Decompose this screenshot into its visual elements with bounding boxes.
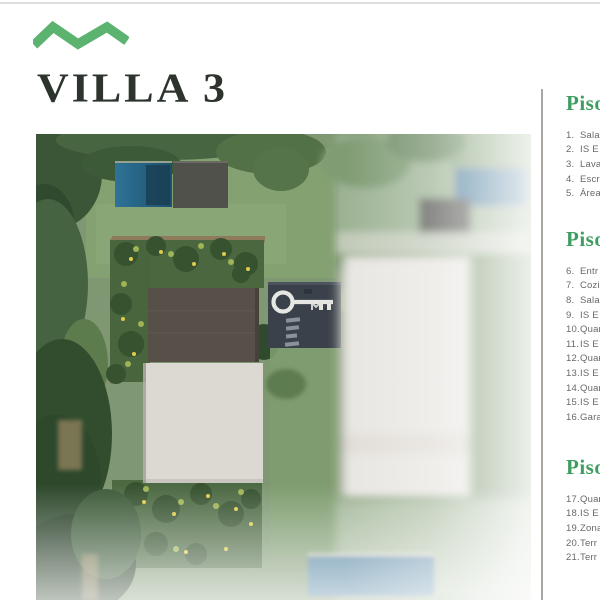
wood-path — [58, 420, 82, 470]
page-title: VILLA 3 — [37, 64, 228, 112]
item-label: Sala — [580, 130, 600, 141]
vertical-divider — [541, 89, 543, 600]
floor-item-list: 17.Quar 18.IS E 19.Zona 20.Terr 21.Terr — [566, 492, 600, 565]
item-label: IS E — [580, 508, 599, 519]
item-label: Cozi — [580, 280, 600, 291]
item-number: 21. — [566, 552, 580, 563]
item-label: Lava — [580, 159, 600, 170]
item-number: 18. — [566, 508, 580, 519]
item-label: Quar — [580, 324, 600, 335]
list-item: 9.IS E — [566, 308, 600, 323]
list-item: 20.Terr — [566, 536, 600, 551]
list-item: 13.IS E — [566, 366, 600, 381]
item-label: Terr — [580, 538, 597, 549]
floor-heading: Piso — [566, 455, 600, 480]
shrub — [266, 369, 306, 399]
item-label: Quar — [580, 353, 600, 364]
item-number: 2. — [566, 144, 580, 155]
item-number: 10. — [566, 324, 580, 335]
item-number: 17. — [566, 494, 580, 505]
top-pool — [115, 161, 172, 207]
floor-section-3: Piso 17.Quar 18.IS E 19.Zona 20.Terr 21.… — [566, 455, 600, 565]
pool-deck — [173, 161, 228, 208]
item-number: 19. — [566, 523, 580, 534]
item-number: 1. — [566, 130, 580, 141]
site-plan-image — [36, 134, 531, 600]
list-item: 7.Cozi — [566, 279, 600, 294]
list-item: 5.Área — [566, 186, 600, 201]
item-label: IS E — [580, 144, 599, 155]
item-label: Entr — [580, 266, 598, 277]
item-label: IS E — [580, 397, 599, 408]
page-top-divider — [0, 2, 600, 4]
list-item: 3.Lava — [566, 157, 600, 172]
item-number: 12. — [566, 353, 580, 364]
item-number: 9. — [566, 310, 580, 321]
list-item: 2.IS E — [566, 143, 600, 158]
item-label: Escr — [580, 174, 600, 185]
item-number: 14. — [566, 383, 580, 394]
list-item: 21.Terr — [566, 550, 600, 565]
floor-section-2: Piso 6.Entr 7.Cozi 8.Sala 9.IS E 10.Quar… — [566, 227, 600, 425]
list-item: 10.Quar — [566, 322, 600, 337]
site-plan-svg — [36, 134, 531, 600]
item-label: IS E — [580, 310, 599, 321]
list-item: 1.Sala — [566, 128, 600, 143]
mountain-zigzag-logo-icon — [33, 16, 129, 54]
item-label: IS E — [580, 339, 599, 350]
list-item: 18.IS E — [566, 507, 600, 522]
item-label: Gara — [580, 412, 600, 423]
list-item: 4.Escr — [566, 172, 600, 187]
white-roof — [143, 363, 263, 483]
item-label: IS E — [580, 368, 599, 379]
floor-section-1: Piso 1.Sala 2.IS E 3.Lava 4.Escr 5.Área — [566, 91, 600, 201]
depth-fade-bottom — [36, 484, 531, 600]
item-label: Terr — [580, 552, 597, 563]
floor-heading: Piso — [566, 91, 600, 116]
item-number: 15. — [566, 397, 580, 408]
item-label: Quar — [580, 383, 600, 394]
item-number: 13. — [566, 368, 580, 379]
item-number: 3. — [566, 159, 580, 170]
list-item: 12.Quar — [566, 352, 600, 367]
floor-item-list: 1.Sala 2.IS E 3.Lava 4.Escr 5.Área — [566, 128, 600, 201]
floor-heading: Piso — [566, 227, 600, 252]
item-number: 11. — [566, 339, 580, 350]
item-label: Área — [580, 188, 600, 199]
list-item: 11.IS E — [566, 337, 600, 352]
item-label: Sala — [580, 295, 600, 306]
floor-item-list: 6.Entr 7.Cozi 8.Sala 9.IS E 10.Quar 11.I… — [566, 264, 600, 425]
item-number: 5. — [566, 188, 580, 199]
list-item: 19.Zona — [566, 521, 600, 536]
list-item: 17.Quar — [566, 492, 600, 507]
list-item: 14.Quar — [566, 381, 600, 396]
item-number: 20. — [566, 538, 580, 549]
item-number: 16. — [566, 412, 580, 423]
list-item: 16.Gara — [566, 410, 600, 425]
item-label: Quar — [580, 494, 600, 505]
item-number: 8. — [566, 295, 580, 306]
item-number: 4. — [566, 174, 580, 185]
item-number: 6. — [566, 266, 580, 277]
item-label: Zona — [580, 523, 600, 534]
list-item: 15.IS E — [566, 395, 600, 410]
list-item: 6.Entr — [566, 264, 600, 279]
list-item: 8.Sala — [566, 293, 600, 308]
gray-gravel-roof — [148, 288, 259, 362]
item-number: 7. — [566, 280, 580, 291]
